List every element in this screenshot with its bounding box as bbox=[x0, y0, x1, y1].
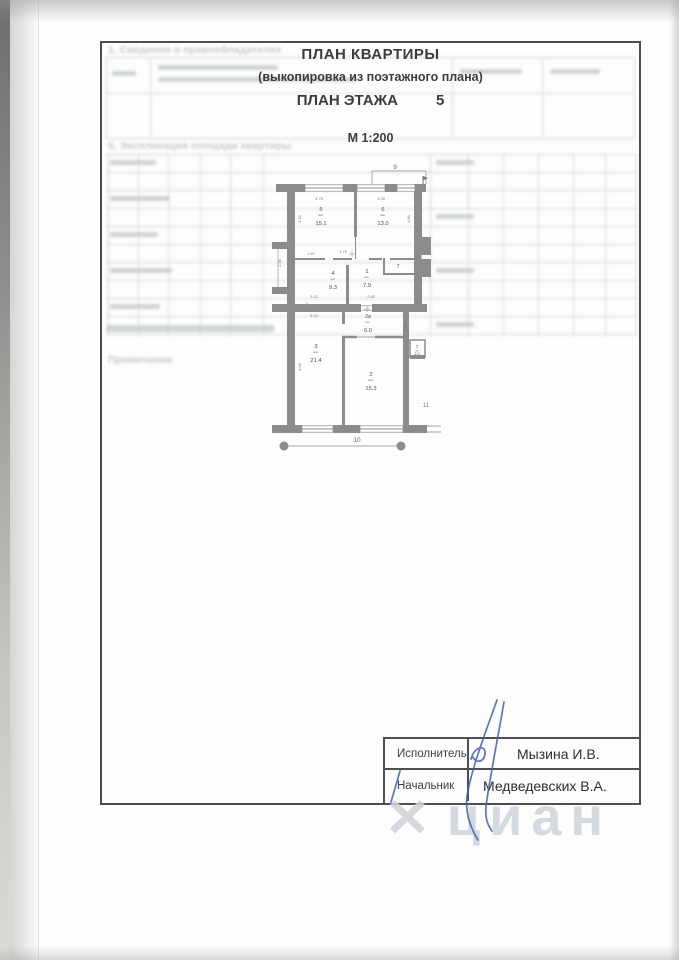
axis-label-11: 11 bbox=[423, 403, 430, 409]
executor-name: Мызина И.В. bbox=[469, 746, 600, 762]
room-label-2a: 2а кор. 6.0 bbox=[364, 314, 372, 334]
room-area: 15.3 bbox=[365, 386, 376, 392]
room-label-4: 4 кух. 9.3 bbox=[329, 271, 337, 291]
scanner-left-shadow bbox=[10, 0, 40, 960]
scanner-edge-strip bbox=[0, 0, 10, 960]
floor-title: ПЛАН ЭТАЖА5 bbox=[100, 92, 641, 109]
axis-label-9: 9 bbox=[393, 164, 397, 171]
dim-label: 3.12 bbox=[310, 295, 317, 299]
signature-table-cell: Начальник bbox=[385, 770, 469, 801]
room-area: 9.3 bbox=[329, 285, 337, 291]
room-label-3: 3 жил. 21.4 bbox=[310, 344, 322, 364]
room-area: 13.0 bbox=[377, 221, 388, 227]
dim-label: 1.75 bbox=[339, 250, 346, 254]
room-label-7-upper: 7 bbox=[397, 264, 400, 270]
signature-table-cell: Мызина И.В. bbox=[469, 739, 639, 770]
room-label-6: 6 жил. 13.0 bbox=[377, 207, 388, 227]
room-area: 2.9 bbox=[415, 352, 420, 356]
room-type: кор. bbox=[364, 275, 369, 279]
role-label-executor: Исполнитель bbox=[385, 748, 467, 760]
dim-label: 2.38 bbox=[278, 259, 282, 266]
dim-label: 4.75 bbox=[315, 197, 322, 201]
dim-label: 3.85 bbox=[407, 215, 411, 222]
room-area: 7.9 bbox=[363, 283, 371, 289]
dim-label: 6.08 bbox=[298, 363, 302, 370]
column-marker-circle bbox=[397, 442, 406, 451]
scale-label: М 1:200 bbox=[100, 131, 641, 145]
dim-label: 0.90 bbox=[404, 323, 408, 330]
floor-title-label: ПЛАН ЭТАЖА bbox=[297, 92, 398, 109]
signature-table-cell: Медведевских В.А. bbox=[469, 770, 639, 801]
room-type: жил. bbox=[318, 213, 324, 217]
survey-tick-marks bbox=[304, 251, 370, 312]
axis-label-10: 10 bbox=[353, 437, 361, 444]
dim-label: 1.87 bbox=[307, 252, 314, 256]
room-area: 15.1 bbox=[315, 221, 326, 227]
signature-table: Исполнитель Мызина И.В. Начальник Медвед… bbox=[383, 737, 641, 805]
room-type: жил. bbox=[380, 213, 386, 217]
room-label-7-lower: 7 с/у 2.9 bbox=[415, 344, 420, 356]
scanner-top-shadow bbox=[0, 0, 679, 22]
scanned-document-page: 1. Сведения о правообладателях 5. Экспли… bbox=[0, 0, 679, 960]
floor-number: 5 bbox=[436, 92, 444, 109]
room-area: 21.4 bbox=[310, 358, 322, 364]
chief-name: Медведевских В.А. bbox=[469, 778, 607, 794]
doc-subtitle: (выкопировка из поэтажного плана) bbox=[100, 70, 641, 84]
floor-plan-svg: 9 10 11 5 жил. 15.1 6 жил. 13.0 4 bbox=[257, 159, 509, 464]
room-type: жил. bbox=[368, 378, 374, 382]
room-type: кух. bbox=[331, 277, 336, 281]
room-label-1: 1 кор. 7.9 bbox=[363, 269, 371, 289]
room-label-2: 2 жил. 15.3 bbox=[365, 372, 376, 392]
dim-label: 2.80 bbox=[367, 295, 374, 299]
column-marker-circle bbox=[280, 442, 289, 451]
scanner-bottom-shadow bbox=[0, 946, 679, 960]
scanner-right-shadow bbox=[669, 0, 679, 960]
signature-table-cell: Исполнитель bbox=[385, 739, 469, 770]
doc-title: ПЛАН КВАРТИРЫ bbox=[100, 46, 641, 63]
dim-label: 3.12 bbox=[310, 314, 317, 318]
dim-label: 3.38 bbox=[377, 197, 384, 201]
room-label-5: 5 жил. 15.1 bbox=[315, 207, 326, 227]
room-type: жил. bbox=[313, 350, 319, 354]
paper-edge-line bbox=[38, 0, 39, 960]
room-type: кор. bbox=[365, 320, 370, 324]
room-number: 7 bbox=[416, 344, 419, 349]
dim-label: 3.20 bbox=[298, 215, 302, 222]
role-label-chief: Начальник bbox=[385, 780, 454, 792]
room-area: 6.0 bbox=[364, 328, 372, 334]
datum-flag-icon bbox=[423, 176, 428, 181]
